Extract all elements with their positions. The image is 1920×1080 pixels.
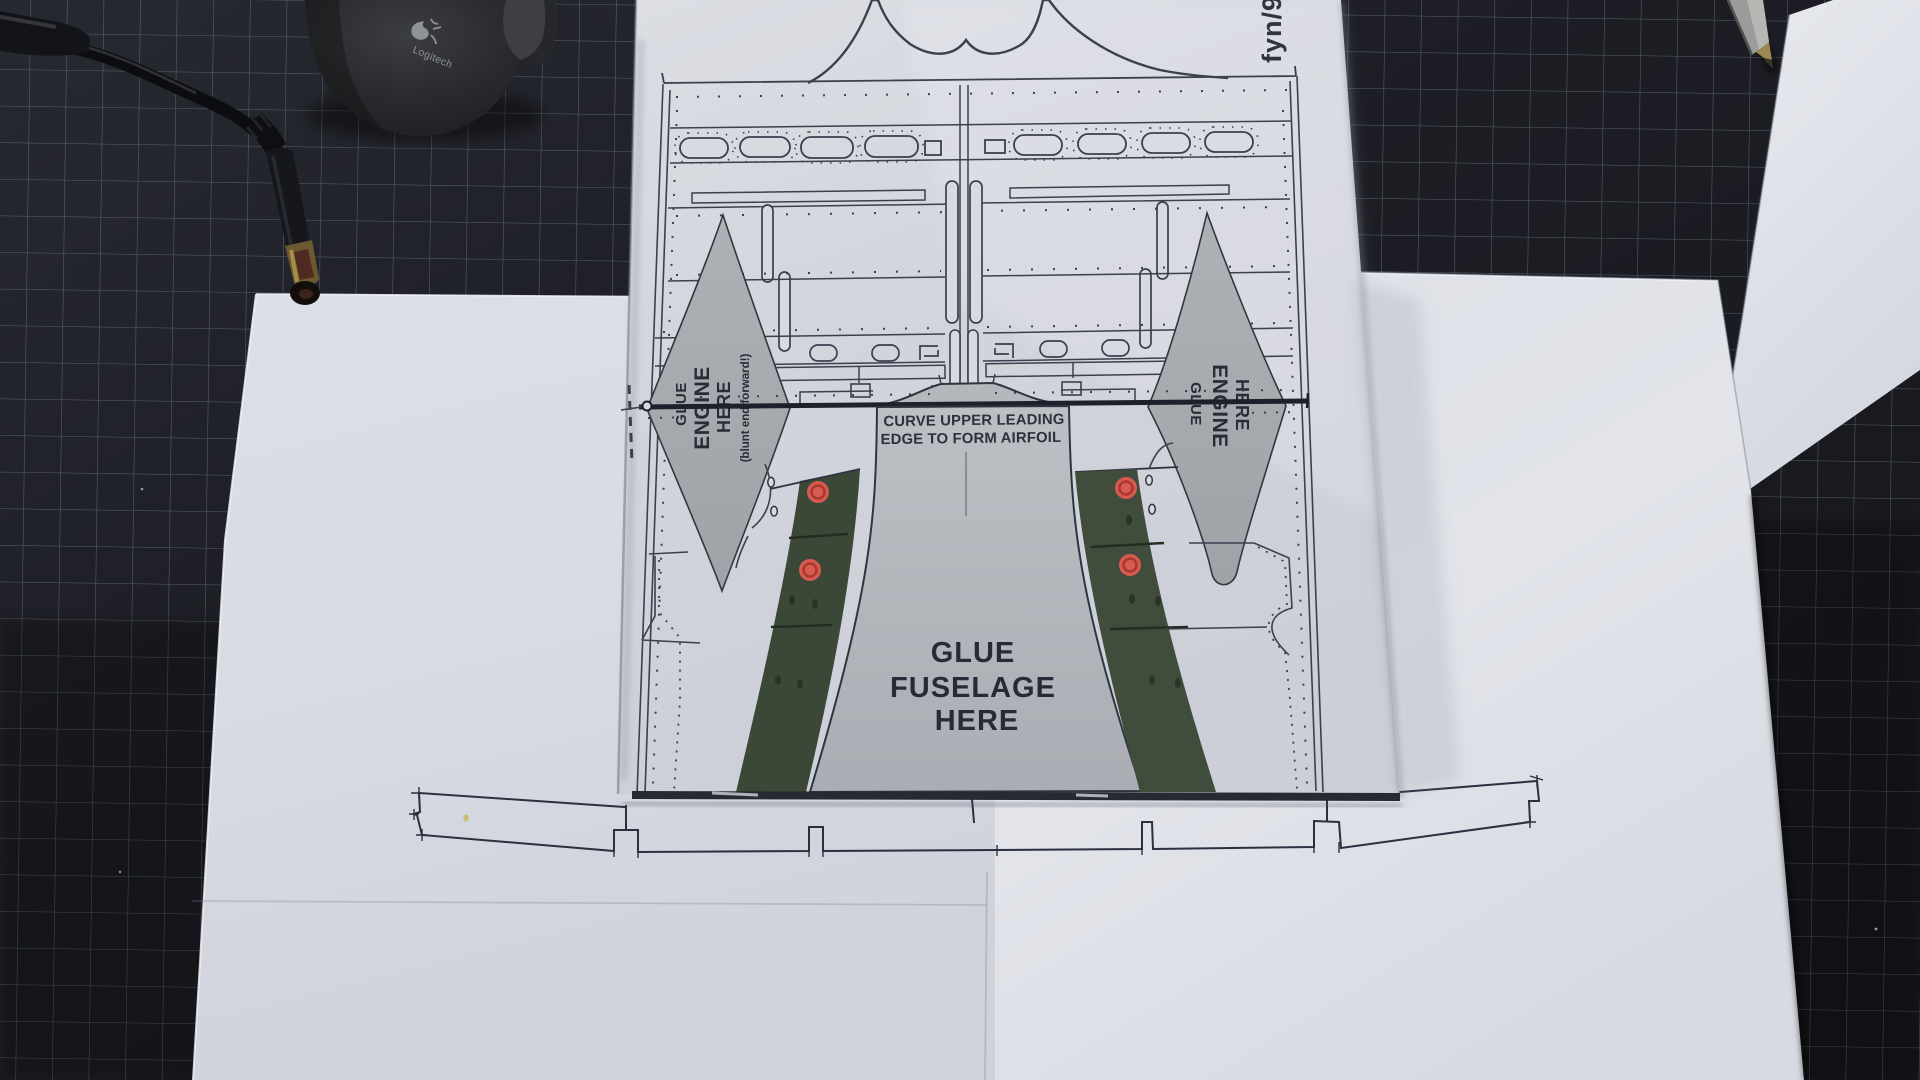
svg-text:HERE: HERE — [935, 705, 1020, 737]
svg-text:GLUE: GLUE — [931, 637, 1016, 669]
svg-text:fyn/99: fyn/99 — [1257, 0, 1287, 63]
svg-text:FUSELAGE: FUSELAGE — [890, 672, 1056, 704]
svg-text:HERE: HERE — [1232, 379, 1252, 431]
svg-text:EDGE TO FORM AIRFOIL: EDGE TO FORM AIRFOIL — [880, 430, 1061, 448]
svg-text:ENGINE: ENGINE — [1208, 364, 1231, 448]
svg-text:CURVE UPPER LEADING: CURVE UPPER LEADING — [883, 412, 1064, 430]
svg-text:GLUE: GLUE — [673, 382, 690, 426]
